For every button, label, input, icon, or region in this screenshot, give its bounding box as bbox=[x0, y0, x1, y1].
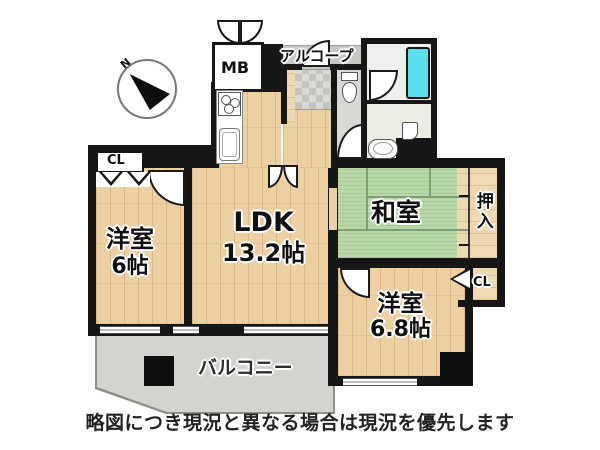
wall bbox=[331, 158, 505, 168]
room-western-68-label: 洋室 6.8帖 bbox=[370, 292, 431, 343]
entrance-tile-floor bbox=[294, 66, 335, 110]
wall bbox=[458, 300, 505, 307]
floor-plan: MB CL N アルコープ 洋室 6帖 LDK 13.2帖 和室 押入 洋室 6… bbox=[0, 0, 600, 450]
meter-box-door-left bbox=[217, 20, 240, 44]
room-ldk-name: LDK bbox=[233, 207, 294, 238]
closet-right-label: CL bbox=[473, 276, 491, 290]
balcony-label: バルコニー bbox=[198, 358, 293, 379]
door-tick bbox=[459, 195, 469, 197]
room-western-68-name: 洋室 bbox=[377, 291, 423, 317]
window bbox=[343, 378, 417, 386]
wall bbox=[281, 64, 287, 124]
folding-door-v-inner bbox=[130, 172, 148, 182]
sliding-door-gap bbox=[329, 186, 337, 232]
room-ldk-label: LDK 13.2帖 bbox=[222, 208, 305, 267]
room-washitsu-label: 和室 bbox=[371, 199, 421, 227]
wall bbox=[331, 64, 337, 160]
window bbox=[173, 326, 199, 334]
room-western-6-size: 6帖 bbox=[111, 254, 148, 279]
room-western-6-name: 洋室 bbox=[106, 225, 154, 253]
window bbox=[244, 326, 328, 334]
kitchen-sink-basin bbox=[222, 132, 237, 157]
stove-burner-icon bbox=[224, 104, 234, 114]
balcony-pillar bbox=[144, 356, 174, 386]
tatami-line bbox=[429, 168, 431, 198]
door-tick bbox=[459, 244, 469, 246]
room-western-68-size: 6.8帖 bbox=[370, 317, 431, 342]
wall bbox=[184, 168, 192, 324]
toilet-tank bbox=[341, 72, 358, 81]
tatami-line bbox=[337, 229, 468, 231]
closet-oshiire-label: 押入 bbox=[473, 192, 492, 232]
wall bbox=[88, 145, 96, 336]
meter-box-door-right bbox=[240, 20, 263, 44]
washbasin-bowl bbox=[373, 142, 393, 155]
folding-door-v-inner bbox=[102, 172, 120, 182]
washroom-cabinet bbox=[402, 122, 418, 140]
room-western-6-label: 洋室 6帖 bbox=[106, 226, 154, 280]
wall bbox=[361, 38, 437, 44]
meter-box-label: MB bbox=[221, 58, 249, 77]
closet-top-label: CL bbox=[107, 153, 125, 168]
caption-note: 略図につき現況と異なる場合は現況を優先します bbox=[0, 408, 600, 435]
alcove-label: アルコープ bbox=[280, 48, 354, 65]
window bbox=[100, 326, 160, 334]
wall bbox=[365, 100, 433, 104]
room-ldk-size: 13.2帖 bbox=[222, 239, 305, 267]
wall bbox=[328, 258, 505, 268]
wall bbox=[497, 158, 505, 307]
corner-pillar bbox=[440, 352, 472, 384]
bathtub bbox=[406, 47, 430, 99]
tatami-line bbox=[366, 168, 368, 230]
